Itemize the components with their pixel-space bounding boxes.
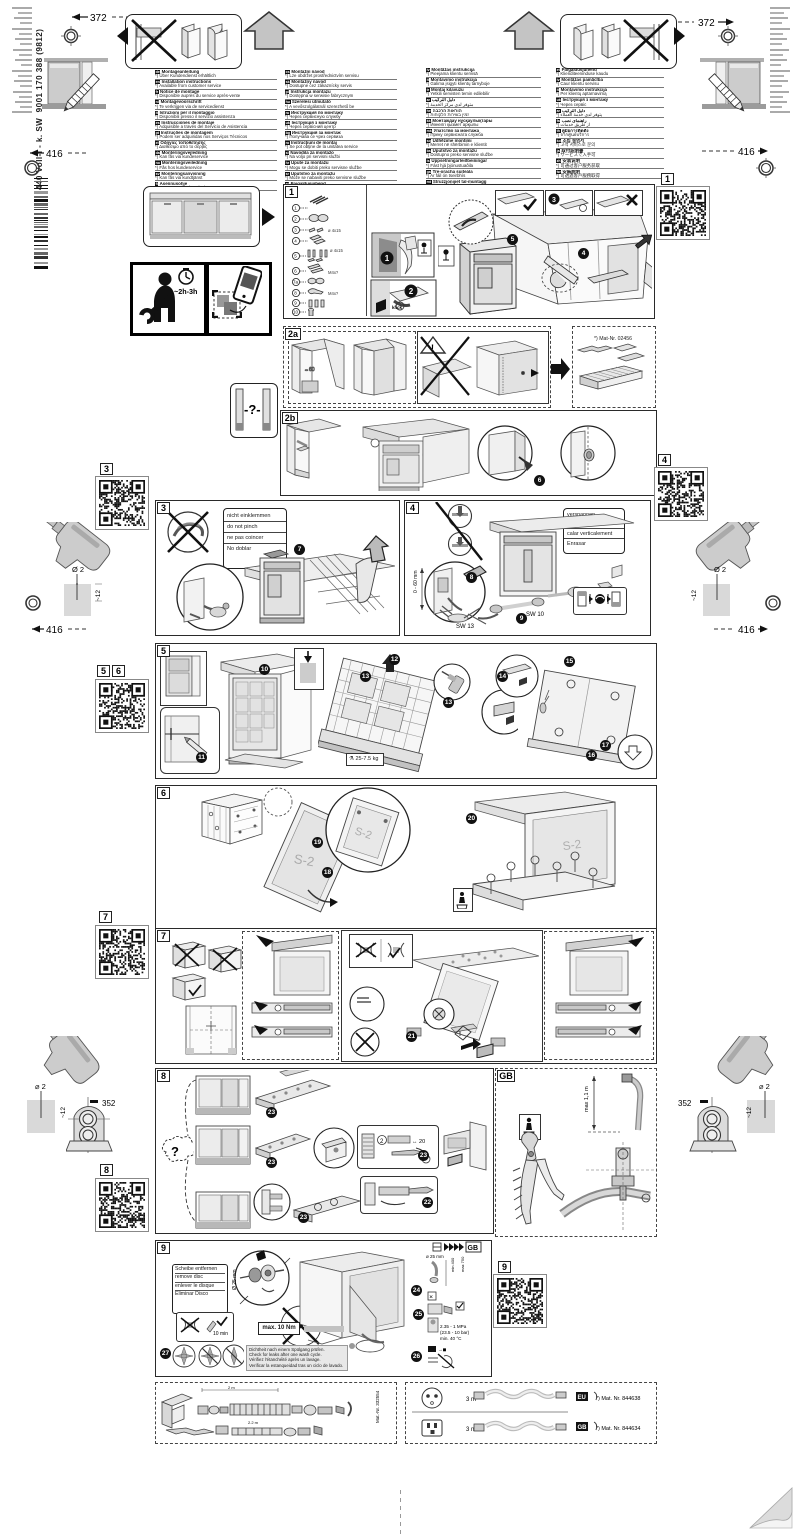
svg-text:✕: ✕ bbox=[429, 1295, 433, 1301]
svg-text:Mat.-Nr. 332554: Mat.-Nr. 332554 bbox=[375, 1390, 380, 1423]
svg-text:3: 3 bbox=[294, 228, 297, 233]
svg-text:↔ 20: ↔ 20 bbox=[412, 1139, 425, 1145]
svg-text:4: 4 bbox=[294, 239, 297, 244]
svg-text:*) Mat-Nr. 02456: *) Mat-Nr. 02456 bbox=[594, 336, 632, 342]
svg-text:352: 352 bbox=[678, 1099, 692, 1108]
svg-text:8: 8 bbox=[294, 291, 297, 296]
svg-text:1: 1 bbox=[294, 206, 297, 211]
svg-text:*) Mat. Nr. 844638: *) Mat. Nr. 844638 bbox=[596, 1396, 640, 1402]
svg-text:2 m: 2 m bbox=[228, 1385, 235, 1390]
svg-text:~12: ~12 bbox=[746, 1107, 753, 1118]
svg-text:EU: EU bbox=[578, 1395, 586, 1401]
svg-text:GB: GB bbox=[578, 1425, 588, 1431]
svg-text:416: 416 bbox=[738, 625, 755, 636]
svg-text:max 1,1 m: max 1,1 m bbox=[584, 1086, 590, 1112]
svg-text:10 min: 10 min bbox=[213, 1331, 228, 1337]
svg-text:416: 416 bbox=[46, 625, 63, 636]
svg-text:min. 40 °C: min. 40 °C bbox=[440, 1336, 462, 1341]
svg-text:⌀ 2: ⌀ 2 bbox=[759, 1082, 770, 1091]
svg-text:↔60: ↔60 bbox=[304, 367, 315, 373]
svg-text:(23.5 - 10 bar): (23.5 - 10 bar) bbox=[440, 1330, 470, 1335]
svg-text:~12: ~12 bbox=[691, 590, 698, 601]
svg-text:→◼: →◼ bbox=[438, 1347, 447, 1352]
svg-text:9: 9 bbox=[294, 301, 297, 306]
svg-text:SW 10: SW 10 bbox=[526, 612, 545, 618]
svg-text:Ø 2: Ø 2 bbox=[72, 565, 84, 574]
svg-text:2: 2 bbox=[409, 287, 414, 296]
svg-text:1: 1 bbox=[385, 254, 390, 263]
svg-text:2: 2 bbox=[294, 217, 297, 222]
svg-text:ø 4x15: ø 4x15 bbox=[330, 248, 343, 253]
svg-text:*) Mat. Nr. 844634: *) Mat. Nr. 844634 bbox=[596, 1426, 640, 1432]
svg-text:SW 13: SW 13 bbox=[456, 624, 475, 630]
svg-text:7a: 7a bbox=[293, 280, 299, 285]
svg-text:352: 352 bbox=[102, 1099, 116, 1108]
svg-text:3: 3 bbox=[552, 197, 556, 204]
svg-text:S-2: S-2 bbox=[562, 837, 583, 854]
svg-text:ø 4x15: ø 4x15 bbox=[328, 228, 341, 233]
svg-text:~2h-3h: ~2h-3h bbox=[174, 287, 197, 296]
svg-text:6: 6 bbox=[294, 269, 297, 274]
svg-text:~12: ~12 bbox=[95, 590, 102, 601]
svg-text:min 400: min 400 bbox=[450, 1257, 455, 1272]
svg-text:2.2 m: 2.2 m bbox=[248, 1420, 259, 1425]
svg-text:ø 25 mm: ø 25 mm bbox=[426, 1254, 444, 1259]
svg-text:M4x?: M4x? bbox=[328, 291, 339, 296]
svg-text:max 750: max 750 bbox=[460, 1256, 465, 1272]
svg-text:M4x?: M4x? bbox=[328, 270, 339, 275]
svg-text:!: ! bbox=[459, 1032, 461, 1038]
svg-text:-?-: -?- bbox=[244, 402, 261, 417]
svg-text:GB: GB bbox=[468, 1245, 479, 1252]
svg-text:Ø 25 mm: Ø 25 mm bbox=[232, 1269, 238, 1290]
svg-text:10: 10 bbox=[293, 310, 299, 315]
svg-text:⌀ 2: ⌀ 2 bbox=[35, 1082, 46, 1091]
svg-text:2.35 - 1 MPa: 2.35 - 1 MPa bbox=[440, 1324, 467, 1329]
svg-text:Ø 2: Ø 2 bbox=[714, 565, 726, 574]
svg-text:klick: klick bbox=[392, 305, 403, 310]
svg-text:5: 5 bbox=[294, 254, 297, 259]
svg-text:0 - 60 mm: 0 - 60 mm bbox=[413, 570, 419, 593]
